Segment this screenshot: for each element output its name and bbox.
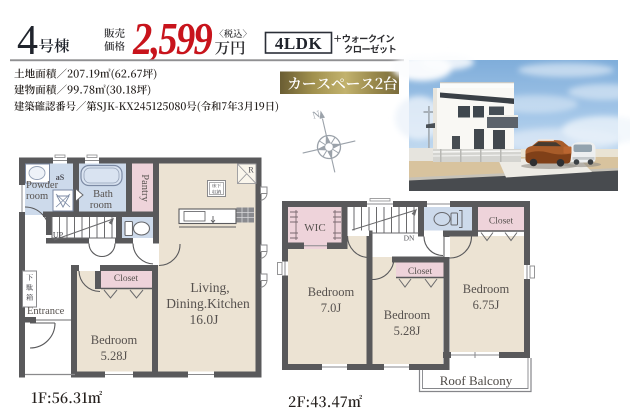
svg-text:4: 4	[17, 18, 38, 64]
svg-text:room: room	[26, 191, 48, 202]
svg-text:Bath: Bath	[93, 189, 114, 200]
svg-text:Roof Balcony: Roof Balcony	[440, 373, 513, 388]
svg-text:Dining.Kitchen: Dining.Kitchen	[166, 296, 250, 311]
svg-text:Bedroom: Bedroom	[91, 333, 138, 347]
svg-text:Closet: Closet	[408, 267, 433, 277]
svg-text:Closet: Closet	[114, 274, 139, 284]
svg-text:Pantry: Pantry	[139, 174, 150, 202]
svg-text:WIC: WIC	[304, 222, 325, 234]
svg-text:5.28J: 5.28J	[394, 324, 421, 338]
svg-text:Entrance: Entrance	[27, 306, 65, 317]
svg-text:room: room	[90, 200, 112, 211]
svg-text:Bedroom: Bedroom	[463, 282, 510, 296]
svg-text:5.28J: 5.28J	[101, 349, 128, 363]
svg-text:R: R	[248, 166, 254, 175]
svg-text:Powder: Powder	[26, 180, 59, 191]
svg-text:Bedroom: Bedroom	[384, 308, 431, 322]
svg-text:Bedroom: Bedroom	[308, 285, 355, 299]
svg-text:6.75J: 6.75J	[473, 298, 500, 312]
svg-text:2,599: 2,599	[132, 14, 212, 64]
svg-text:DN: DN	[404, 234, 415, 243]
svg-text:4LDK: 4LDK	[275, 34, 323, 53]
svg-text:Living,: Living,	[190, 280, 229, 295]
svg-text:UP: UP	[53, 231, 64, 240]
svg-text:Closet: Closet	[489, 217, 514, 227]
svg-text:16.0J: 16.0J	[190, 312, 219, 327]
svg-text:7.0J: 7.0J	[321, 301, 342, 315]
